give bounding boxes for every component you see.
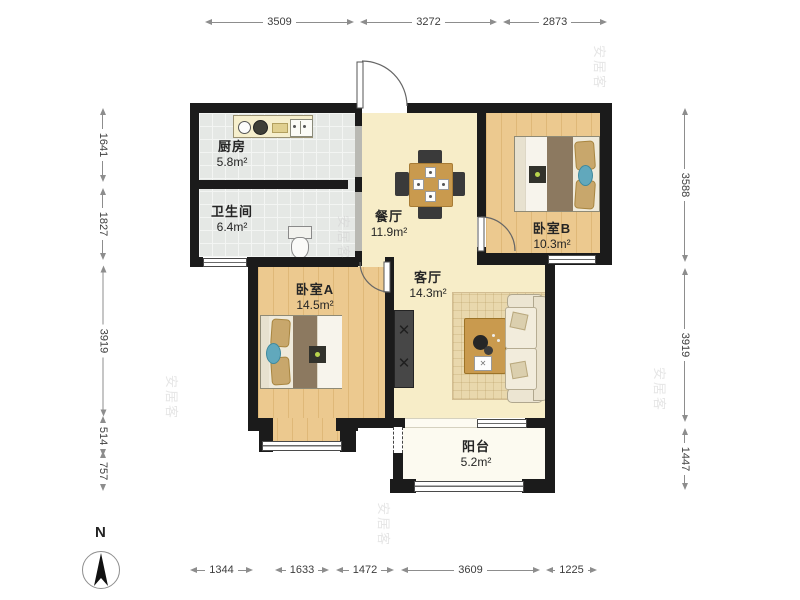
room-label-bathroom: 卫生间 6.4m²: [192, 205, 272, 234]
north-arrow-icon: [81, 549, 121, 591]
watermark: 安居客: [375, 502, 394, 547]
dim-left-3: 3919: [97, 263, 111, 420]
entry-door-leaf: [357, 62, 363, 108]
room-name: 阳台: [436, 440, 516, 454]
north-label: N: [95, 524, 106, 541]
dim-left-2: 1827: [96, 185, 110, 263]
bedroomB-door-leaf: [478, 217, 484, 251]
dim-value: 514: [97, 423, 110, 449]
dim-value: 1633: [286, 564, 318, 577]
dim-right-3: 1447: [678, 425, 692, 493]
dim-left-1: 1641: [96, 105, 110, 185]
room-area: 6.4m²: [192, 220, 272, 234]
dim-right-1: 3588: [678, 105, 692, 265]
dim-value: 3919: [97, 325, 110, 357]
dim-value: 1344: [205, 564, 237, 577]
room-name: 卧室A: [275, 283, 355, 297]
room-label-dining: 餐厅 11.9m²: [349, 210, 429, 239]
dim-bottom-4: 3609: [398, 563, 543, 577]
dim-top-1: 3509: [202, 15, 357, 29]
dim-value: 1225: [555, 564, 587, 577]
room-label-bedroomB: 卧室B 10.3m²: [512, 222, 592, 251]
dim-value: 3609: [454, 564, 486, 577]
watermark: 安居客: [335, 215, 354, 260]
dim-value: 1472: [349, 564, 381, 577]
dim-value: 3509: [263, 16, 295, 29]
room-name: 餐厅: [349, 210, 429, 224]
floor-plan: ✕ ✕ ✕: [0, 0, 800, 600]
watermark: 安居客: [591, 45, 610, 90]
room-label-bedroomA: 卧室A 14.5m²: [275, 283, 355, 312]
entry-door-arc: [362, 61, 407, 106]
room-label-living: 客厅 14.3m²: [388, 271, 468, 300]
room-label-kitchen: 厨房 5.8m²: [192, 140, 272, 169]
dim-value: 3919: [679, 329, 692, 361]
dim-value: 1827: [97, 208, 110, 240]
bedroomB-door-arc: [481, 217, 515, 251]
room-area: 10.3m²: [512, 237, 592, 251]
room-name: 客厅: [388, 271, 468, 285]
room-area: 5.2m²: [436, 455, 516, 469]
dim-value: 2873: [539, 16, 571, 29]
dim-top-3: 2873: [500, 15, 610, 29]
room-area: 5.8m²: [192, 155, 272, 169]
room-area: 11.9m²: [349, 225, 429, 239]
dim-value: 757: [97, 458, 110, 484]
dim-bottom-5: 1225: [545, 563, 598, 577]
room-name: 厨房: [192, 140, 272, 154]
dim-value: 3588: [679, 169, 692, 201]
watermark: 安居客: [651, 367, 670, 412]
dim-bottom-2: 1633: [272, 563, 332, 577]
room-name: 卧室B: [512, 222, 592, 236]
dim-value: 3272: [412, 16, 444, 29]
dim-bottom-3: 1472: [333, 563, 397, 577]
room-area: 14.5m²: [275, 298, 355, 312]
dim-value: 1447: [679, 443, 692, 475]
dim-top-2: 3272: [357, 15, 500, 29]
room-name: 卫生间: [192, 205, 272, 219]
dim-left-5: 757: [96, 452, 110, 490]
room-area: 14.3m²: [388, 286, 468, 300]
room-label-balcony: 阳台 5.2m²: [436, 440, 516, 469]
watermark: 安居客: [163, 375, 182, 420]
dim-value: 1641: [97, 129, 110, 161]
dim-right-2: 3919: [678, 265, 692, 425]
dim-bottom-1: 1344: [187, 563, 256, 577]
